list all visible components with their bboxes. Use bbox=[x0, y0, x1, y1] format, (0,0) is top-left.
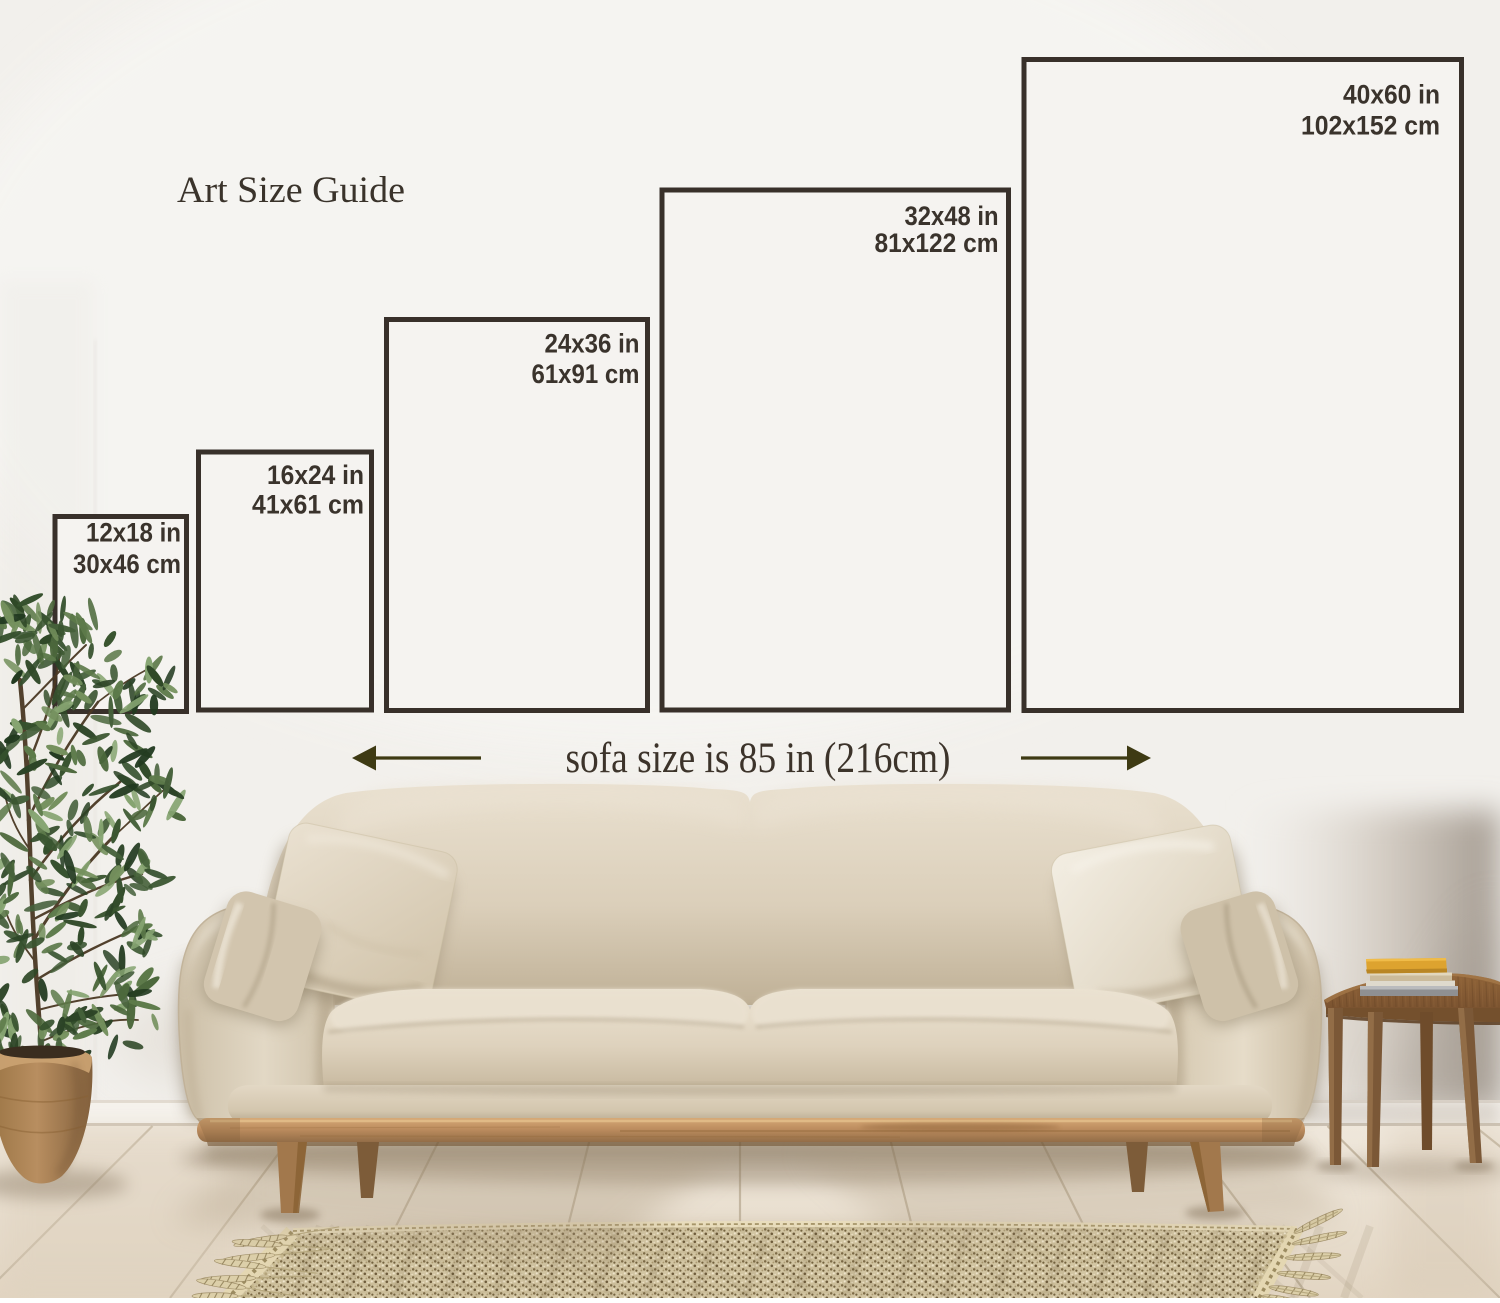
svg-text:Art Size Guide: Art Size Guide bbox=[177, 170, 405, 211]
svg-text:41x61 cm: 41x61 cm bbox=[252, 490, 364, 520]
svg-text:12x18 in: 12x18 in bbox=[86, 518, 181, 548]
svg-text:24x36 in: 24x36 in bbox=[545, 329, 640, 359]
svg-text:sofa size is 85 in (216cm): sofa size is 85 in (216cm) bbox=[566, 735, 951, 782]
svg-text:16x24 in: 16x24 in bbox=[267, 460, 364, 490]
svg-text:102x152 cm: 102x152 cm bbox=[1301, 111, 1440, 141]
svg-text:40x60 in: 40x60 in bbox=[1343, 80, 1440, 110]
svg-text:61x91 cm: 61x91 cm bbox=[532, 359, 640, 389]
svg-text:32x48 in: 32x48 in bbox=[905, 201, 999, 231]
svg-text:30x46 cm: 30x46 cm bbox=[73, 549, 181, 579]
svg-text:81x122 cm: 81x122 cm bbox=[875, 228, 999, 258]
